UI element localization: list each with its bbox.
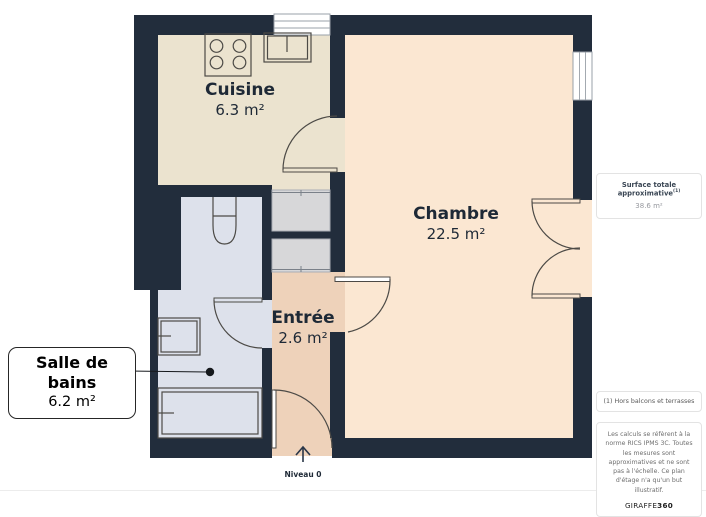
surface-total-value: 38.6 m² [600, 202, 698, 210]
chambre-floor [335, 28, 573, 438]
bathroom-callout: Salle de bains 6.2 m² [8, 347, 136, 419]
surface-total-box: Surface totale approximative(1) 38.6 m² [596, 173, 702, 219]
room-area: 6.2 m² [9, 393, 135, 412]
surface-footnote-marker: (1) [673, 189, 680, 194]
surface-total-title: Surface totale approximative(1) [600, 181, 698, 197]
room-name: Salle de bains [9, 353, 135, 393]
brand-logo: GIRAFFE360 [604, 501, 694, 510]
footnote-box: (1) Hors balcons et terrasses [596, 391, 702, 412]
legal-box: Les calculs se réfèrent à la norme RICS … [596, 422, 702, 517]
footnote-text: (1) Hors balcons et terrasses [599, 398, 699, 405]
window-icon [274, 14, 330, 35]
wardrobe-icon [272, 190, 330, 272]
legal-text: Les calculs se réfèrent à la norme RICS … [604, 430, 694, 495]
entree-floor [272, 272, 332, 456]
level-label: Niveau 0 [253, 470, 353, 479]
window-icon [573, 52, 592, 100]
